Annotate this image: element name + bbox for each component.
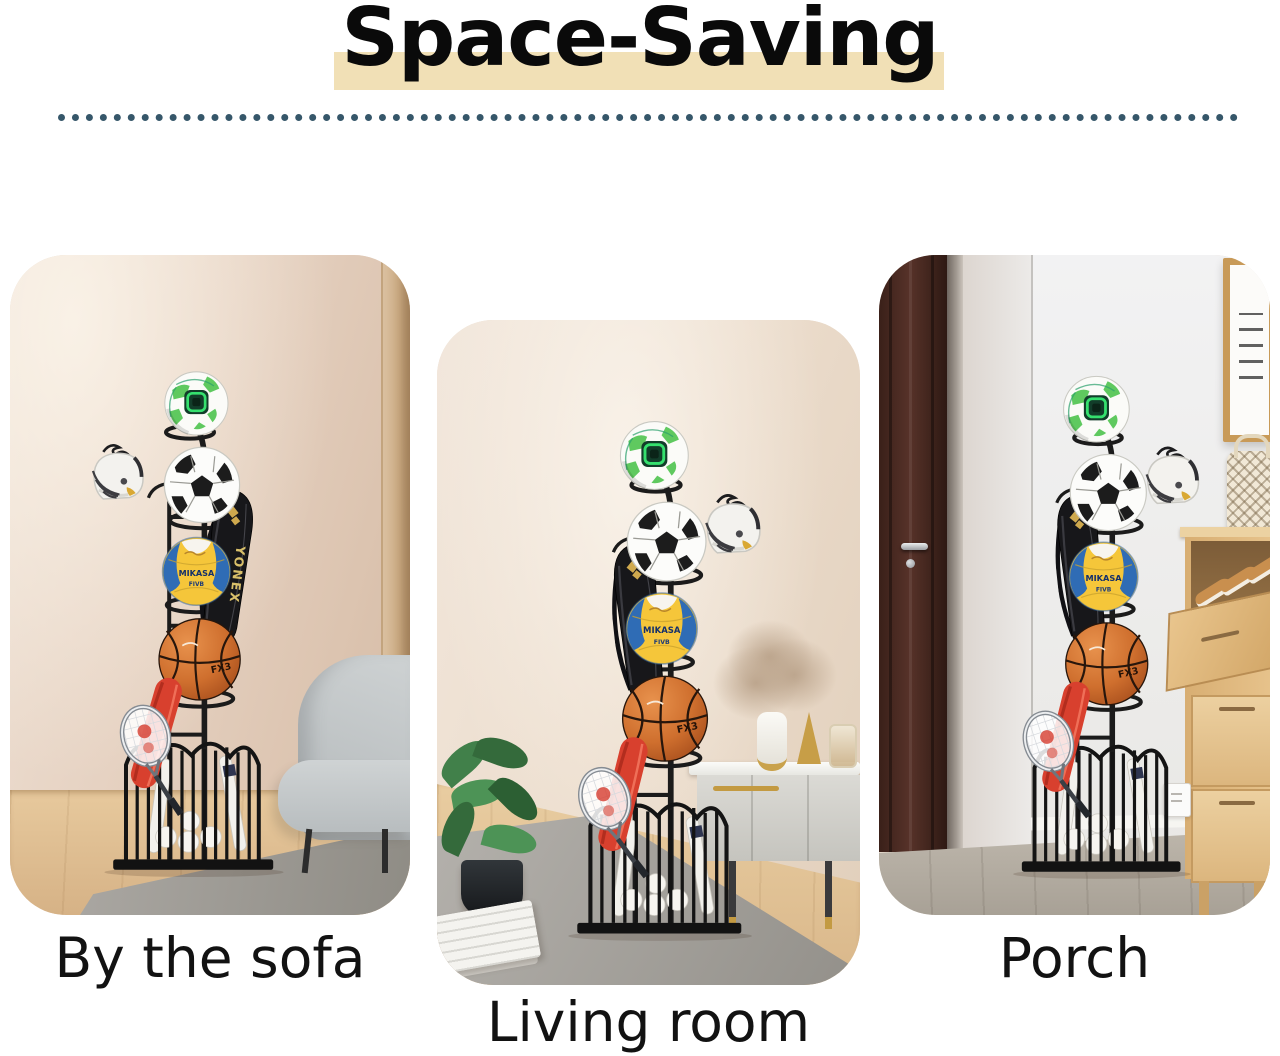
cabinet-leg — [1199, 881, 1209, 915]
sports-rack — [533, 416, 779, 941]
cabinet-leg — [1254, 881, 1264, 915]
photo-card-porch — [879, 255, 1270, 915]
sideboard-leg — [825, 861, 832, 929]
sofa-leg — [382, 829, 388, 873]
photo-card-by-the-sofa — [10, 255, 410, 915]
wooden-door — [879, 255, 947, 852]
sports-rack — [979, 371, 1217, 879]
gold-cone-decor — [797, 712, 821, 764]
sports-rack — [70, 365, 310, 877]
door-lock — [906, 559, 915, 568]
picture-frame — [1223, 258, 1270, 442]
frame-artwork — [1239, 313, 1263, 379]
door-handle — [901, 543, 928, 550]
glass-jar — [829, 724, 857, 768]
rattan-bag — [1227, 451, 1270, 531]
caption-porch: Porch — [879, 926, 1270, 990]
caption-by-the-sofa: By the sofa — [10, 926, 410, 990]
door-frame — [947, 255, 963, 852]
header: Space-Saving — [0, 0, 1280, 100]
photo-card-living-room — [437, 320, 860, 985]
page-title: Space-Saving — [0, 0, 1280, 84]
dotted-divider — [58, 114, 1238, 121]
caption-living-room: Living room — [437, 990, 860, 1054]
